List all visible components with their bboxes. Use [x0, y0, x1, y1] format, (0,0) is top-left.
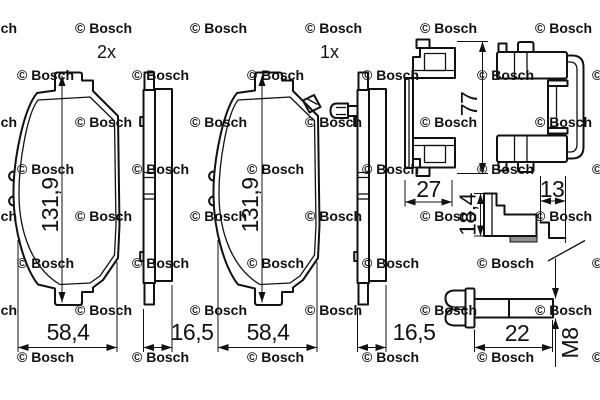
watermark-text: © Bosch — [75, 208, 132, 224]
watermark-text: © Bosch — [75, 302, 132, 318]
watermark-text: © Bosch — [305, 20, 362, 36]
technical-drawing-page: © Bosch© Bosch© Bosch© Bosch© Bosch© Bos… — [0, 0, 600, 400]
watermark-text: © Bosch — [17, 349, 74, 365]
dim-label-pad-height-left: 131,9 — [37, 177, 63, 232]
watermark-text: © Bosch — [247, 161, 304, 177]
watermark-text: © Bosch — [362, 67, 419, 83]
watermark-text: © Bosch — [592, 161, 600, 177]
dim-label-pad-width-left: 58,4 — [47, 319, 90, 345]
watermark-text: © Bosch — [592, 67, 600, 83]
watermark-text: © Bosch — [477, 255, 534, 271]
dim-label-pad-height-right: 131,9 — [237, 177, 263, 232]
watermark-text: © Bosch — [477, 67, 534, 83]
watermark-text: © Bosch — [190, 20, 247, 36]
watermark-text: © Bosch — [305, 208, 362, 224]
dim-label-bolt-length: 22 — [505, 320, 530, 346]
dim-label-clip-width: 27 — [416, 176, 441, 202]
quantity-label-left: 2x — [97, 42, 116, 62]
watermark-text: © Bosch — [17, 161, 74, 177]
watermark-text: © Bosch — [132, 67, 189, 83]
spring-clip-detail — [474, 194, 537, 243]
watermark-text: © Bosch — [75, 20, 132, 36]
watermark-text: © Bosch — [362, 349, 419, 365]
dim-label-bolt-thread: M8 — [557, 328, 583, 359]
watermark-text: © Bosch — [362, 255, 419, 271]
watermark-text: © Bosch — [535, 20, 592, 36]
dim-label-pad-thickness-right: 16,5 — [393, 319, 436, 345]
watermark-text: © Bosch — [477, 349, 534, 365]
watermark-text: © Bosch — [247, 255, 304, 271]
watermark-text: © Bosch — [247, 349, 304, 365]
watermark-text: © Bosch — [592, 349, 600, 365]
watermark-text: © Bosch — [17, 67, 74, 83]
watermark-text: © Bosch — [305, 302, 362, 318]
drawing-canvas: © Bosch© Bosch© Bosch© Bosch© Bosch© Bos… — [0, 0, 600, 400]
watermark-text: © Bosch — [0, 20, 17, 36]
dim-label-pad-thickness-left: 16,5 — [171, 319, 214, 345]
watermark-text: © Bosch — [132, 161, 189, 177]
watermark-text: © Bosch — [0, 114, 17, 130]
dim-label-pad-width-right: 58,4 — [247, 319, 290, 345]
dim-label-clip-front-width: 13 — [540, 176, 565, 202]
dim-label-clip-height: 77 — [456, 92, 482, 117]
watermark-text: © Bosch — [132, 349, 189, 365]
watermark-text: © Bosch — [190, 114, 247, 130]
dim-label-spring-height: 18,4 — [455, 192, 481, 235]
watermark-text: © Bosch — [0, 302, 17, 318]
watermark-text: © Bosch — [75, 114, 132, 130]
quantity-label-right: 1x — [320, 42, 339, 62]
watermark-text: © Bosch — [420, 20, 477, 36]
watermark-text: © Bosch — [535, 302, 592, 318]
watermark-text: © Bosch — [592, 255, 600, 271]
pad-side-view-left — [140, 73, 172, 353]
